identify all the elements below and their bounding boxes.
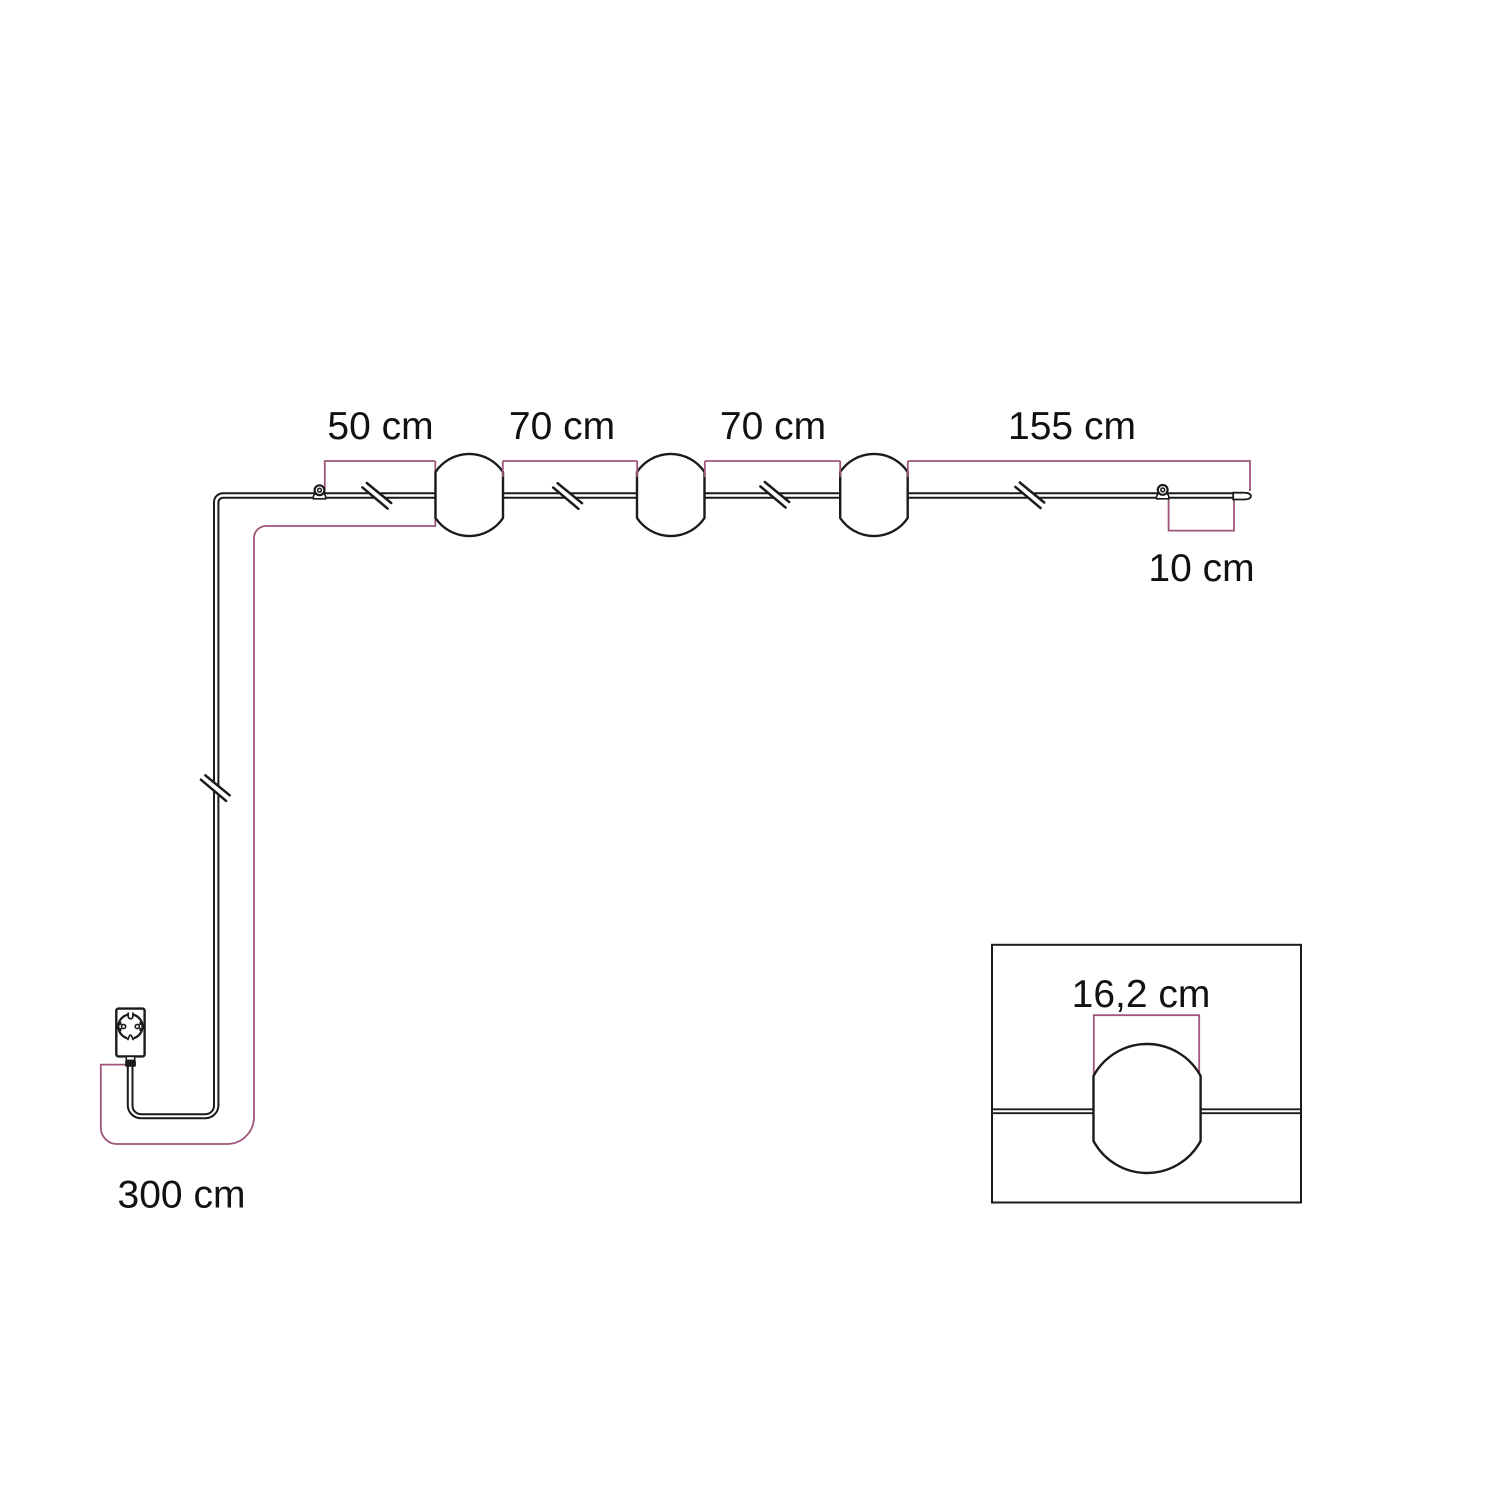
svg-text:300 cm: 300 cm	[118, 1174, 246, 1217]
svg-text:10 cm: 10 cm	[1148, 547, 1254, 590]
svg-text:16,2 cm: 16,2 cm	[1072, 973, 1211, 1016]
svg-text:70 cm: 70 cm	[509, 405, 615, 448]
svg-text:155 cm: 155 cm	[1008, 405, 1136, 448]
svg-text:50 cm: 50 cm	[327, 405, 433, 448]
svg-text:70 cm: 70 cm	[720, 405, 826, 448]
